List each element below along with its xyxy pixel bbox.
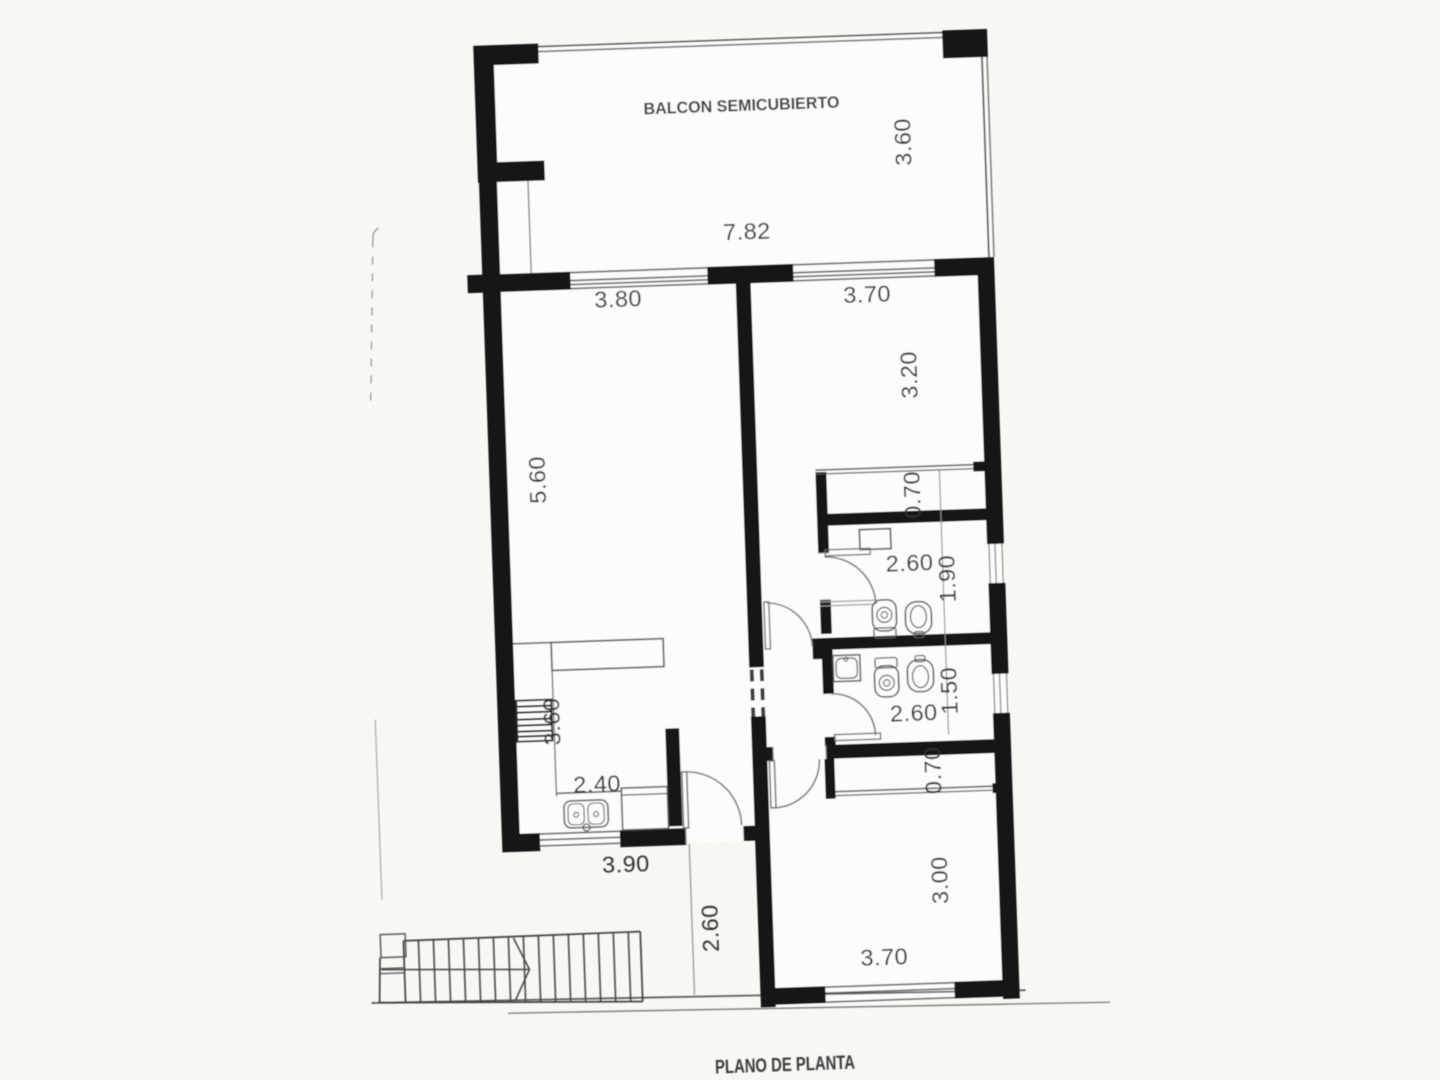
svg-text:3.70: 3.70 xyxy=(843,280,892,308)
svg-text:3.80: 3.80 xyxy=(594,285,643,313)
svg-text:5.60: 5.60 xyxy=(524,456,552,505)
svg-text:3.00: 3.00 xyxy=(926,856,954,905)
svg-text:7.82: 7.82 xyxy=(723,218,772,246)
svg-text:1.50: 1.50 xyxy=(935,666,963,715)
svg-text:3.20: 3.20 xyxy=(895,351,923,400)
svg-text:2.40: 2.40 xyxy=(573,770,622,798)
svg-text:1.90: 1.90 xyxy=(933,554,961,603)
svg-text:0.70: 0.70 xyxy=(898,471,926,520)
svg-text:0.70: 0.70 xyxy=(919,746,947,795)
svg-text:2.60: 2.60 xyxy=(889,699,938,727)
svg-text:3.70: 3.70 xyxy=(860,943,909,971)
svg-text:2.60: 2.60 xyxy=(885,549,934,577)
svg-text:3.60: 3.60 xyxy=(538,697,566,746)
svg-text:2.60: 2.60 xyxy=(696,904,724,953)
svg-text:3.90: 3.90 xyxy=(602,850,651,878)
svg-text:3.60: 3.60 xyxy=(889,118,917,167)
